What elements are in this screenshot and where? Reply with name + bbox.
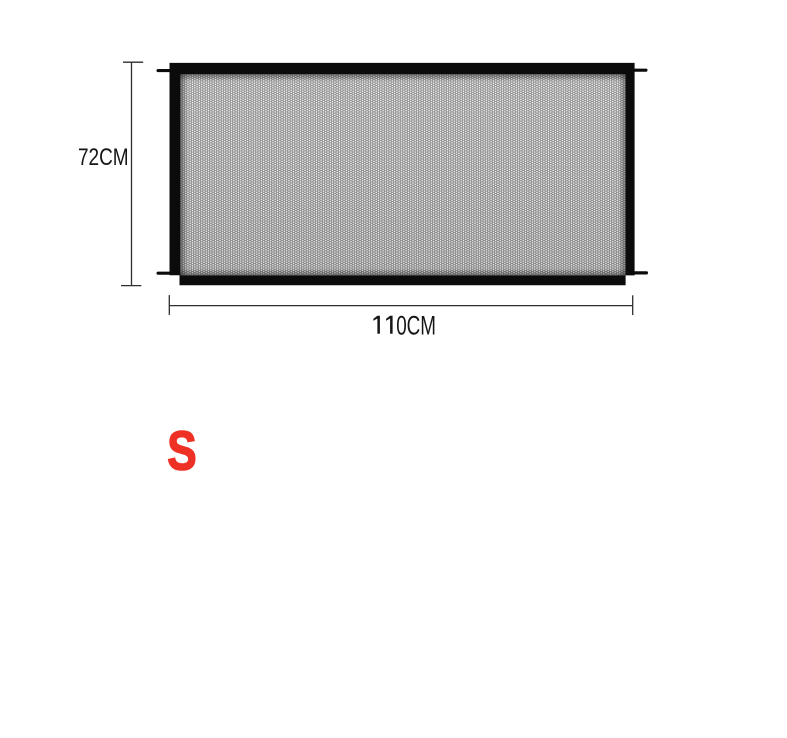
svg-text:72CM: 72CM [78, 145, 129, 171]
svg-text:0CM: 0CM [396, 310, 436, 340]
svg-text:S: S [167, 420, 196, 482]
